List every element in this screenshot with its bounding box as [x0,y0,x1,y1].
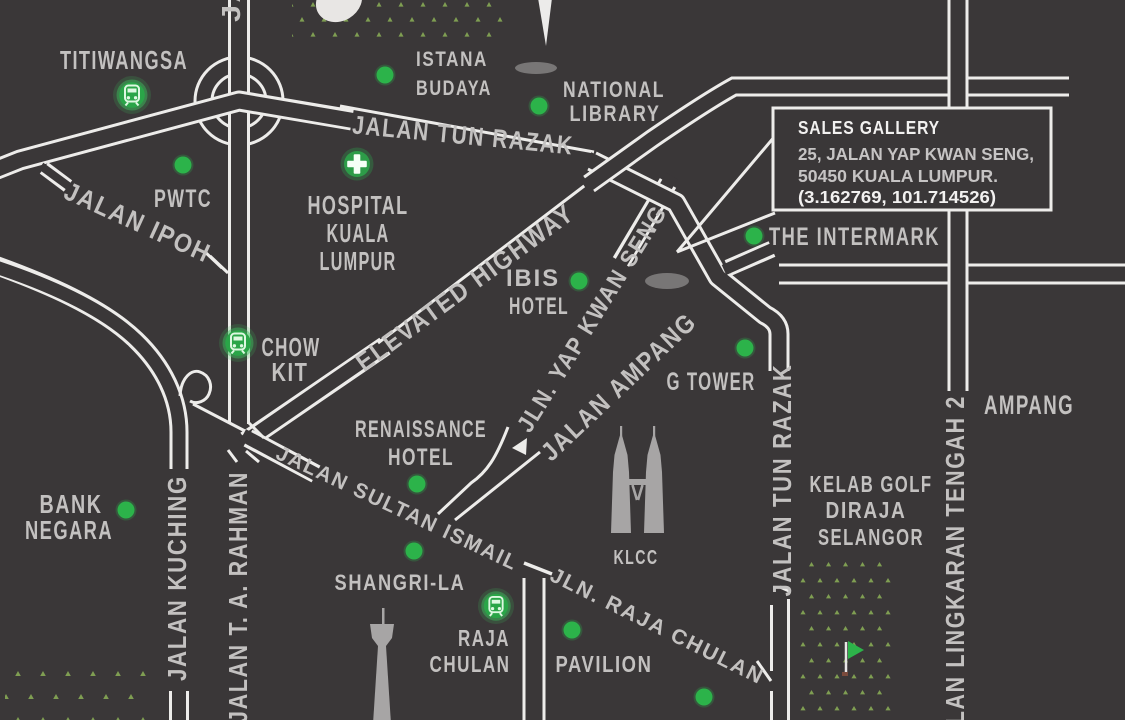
svg-text:IBIS: IBIS [506,265,560,292]
svg-text:JALAN KUCHING: JALAN KUCHING [162,475,192,681]
svg-text:BUDAYA: BUDAYA [416,77,492,100]
svg-text:JALAN LINGKARAN TENGAH 2: JALAN LINGKARAN TENGAH 2 [940,395,970,720]
svg-text:LIBRARY: LIBRARY [570,101,661,126]
svg-text:SALES GALLERY: SALES GALLERY [798,117,940,138]
svg-text:HOSPITAL: HOSPITAL [308,190,409,220]
svg-text:CHULAN: CHULAN [430,651,511,677]
svg-text:RAJA: RAJA [458,625,510,651]
svg-text:(3.162769, 101.714526): (3.162769, 101.714526) [798,187,996,207]
svg-text:JALAN TUN RAZAK: JALAN TUN RAZAK [767,364,797,597]
svg-text:KUALA: KUALA [327,218,390,248]
svg-text:KIT: KIT [272,357,309,387]
svg-text:LUMPUR: LUMPUR [320,246,397,276]
svg-text:SHANGRI-LA: SHANGRI-LA [335,570,466,595]
svg-text:50450 KUALA LUMPUR.: 50450 KUALA LUMPUR. [798,166,998,186]
svg-text:KELAB GOLF: KELAB GOLF [810,471,933,497]
svg-text:PWTC: PWTC [154,185,212,213]
svg-text:JA: JA [216,0,246,22]
svg-text:HOTEL: HOTEL [509,293,569,320]
svg-text:THE INTERMARK: THE INTERMARK [769,223,940,251]
svg-text:G TOWER: G TOWER [667,368,756,396]
svg-text:JALAN T. A. RAHMAN: JALAN T. A. RAHMAN [223,471,253,720]
svg-text:DIRAJA: DIRAJA [826,497,907,523]
svg-text:PAVILION: PAVILION [556,651,653,677]
svg-text:RENAISSANCE: RENAISSANCE [355,416,487,443]
svg-text:KLCC: KLCC [614,547,659,569]
svg-text:NEGARA: NEGARA [25,515,113,545]
svg-text:25, JALAN YAP KWAN SENG,: 25, JALAN YAP KWAN SENG, [798,144,1034,164]
svg-text:TITIWANGSA: TITIWANGSA [60,45,188,75]
svg-text:SELANGOR: SELANGOR [818,524,924,550]
svg-text:AMPANG: AMPANG [984,390,1074,420]
svg-text:NATIONAL: NATIONAL [563,77,665,102]
svg-text:HOTEL: HOTEL [388,444,454,471]
svg-text:ISTANA: ISTANA [416,48,488,71]
